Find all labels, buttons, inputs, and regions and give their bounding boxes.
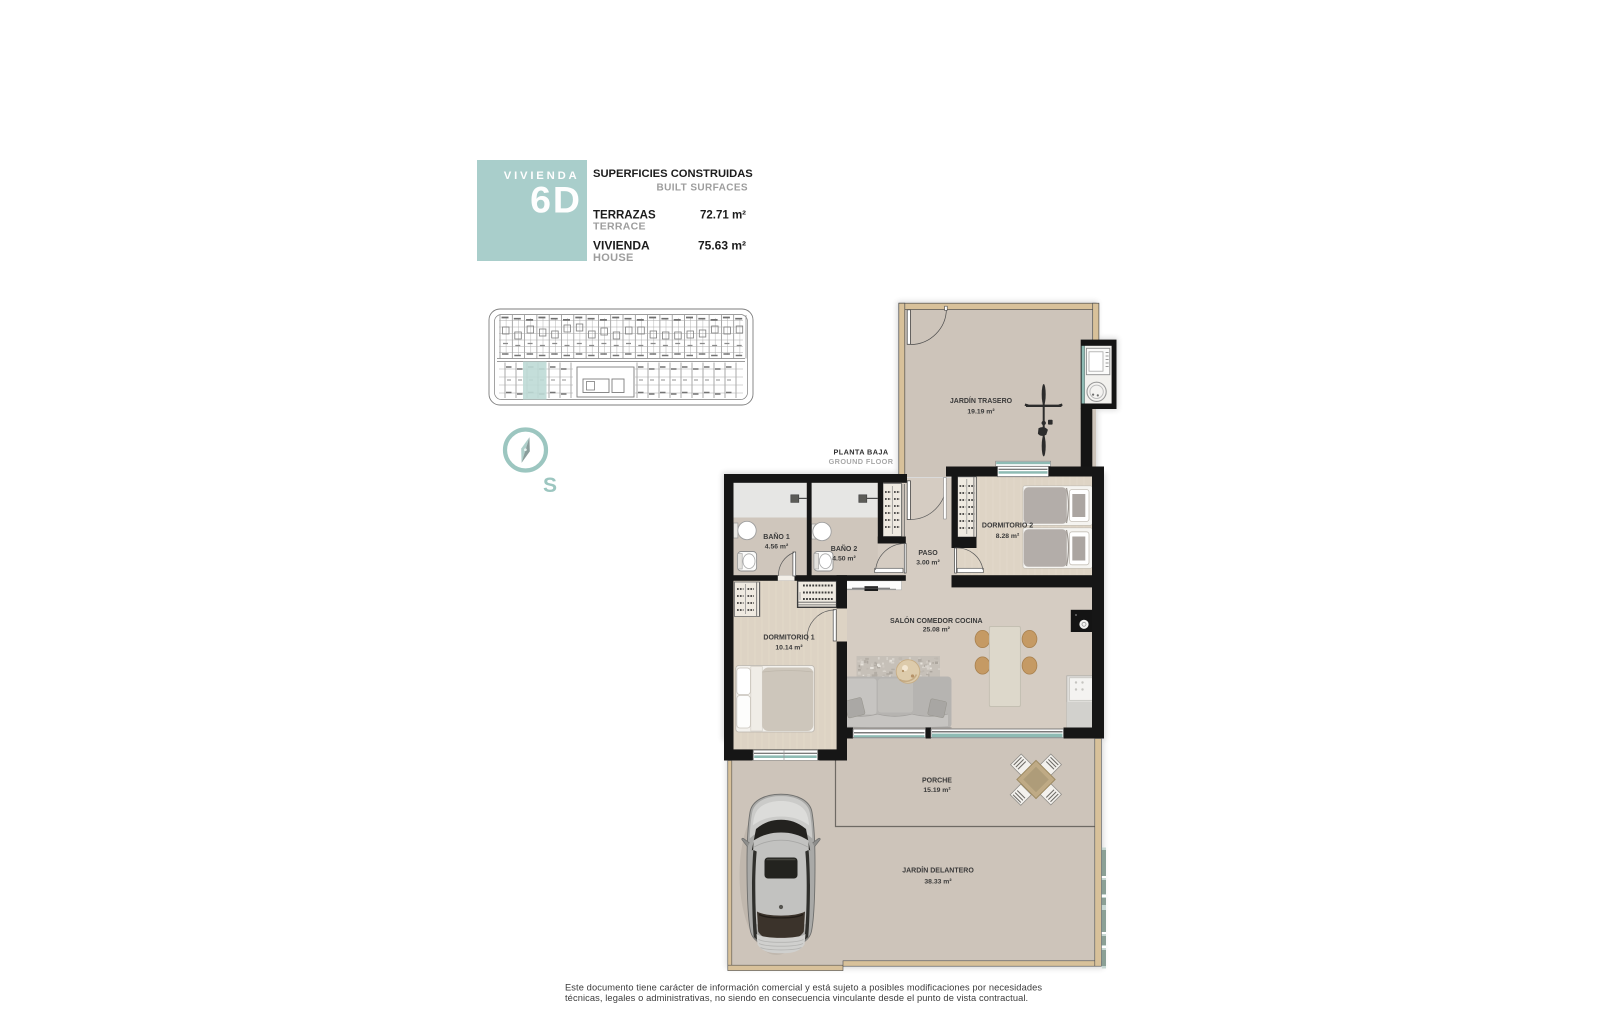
svg-text:JARDÍN TRASERO: JARDÍN TRASERO bbox=[950, 396, 1013, 405]
svg-text:JARDÍN DELANTERO: JARDÍN DELANTERO bbox=[902, 865, 974, 874]
svg-text:4.56 m²: 4.56 m² bbox=[765, 543, 789, 550]
svg-text:técnicas, legales o administra: técnicas, legales o administrativas, no … bbox=[565, 993, 1028, 1003]
svg-text:PLANTA BAJA: PLANTA BAJA bbox=[833, 448, 888, 457]
svg-text:PORCHE: PORCHE bbox=[922, 777, 952, 784]
svg-text:10.14 m²: 10.14 m² bbox=[775, 645, 803, 652]
svg-text:25.08 m²: 25.08 m² bbox=[923, 627, 951, 634]
svg-text:72.71 m²: 72.71 m² bbox=[700, 210, 746, 222]
svg-text:PASO: PASO bbox=[918, 550, 938, 557]
svg-text:38.33 m²: 38.33 m² bbox=[924, 878, 952, 885]
svg-text:BUILT SURFACES: BUILT SURFACES bbox=[656, 183, 748, 194]
svg-text:DORMITORIO 1: DORMITORIO 1 bbox=[763, 634, 814, 641]
svg-text:8.28 m²: 8.28 m² bbox=[996, 533, 1020, 540]
svg-text:4.50 m²: 4.50 m² bbox=[832, 555, 856, 562]
svg-text:6D: 6D bbox=[530, 179, 582, 221]
svg-text:GROUND FLOOR: GROUND FLOOR bbox=[829, 457, 894, 466]
svg-text:15.19 m²: 15.19 m² bbox=[923, 787, 951, 794]
svg-text:BAÑO 2: BAÑO 2 bbox=[831, 544, 858, 553]
svg-text:75.63 m²: 75.63 m² bbox=[698, 239, 746, 253]
svg-text:HOUSE: HOUSE bbox=[593, 252, 634, 264]
svg-text:19.19 m²: 19.19 m² bbox=[967, 409, 995, 416]
svg-text:VIVIENDA: VIVIENDA bbox=[593, 239, 650, 253]
svg-text:3.00 m²: 3.00 m² bbox=[916, 559, 940, 566]
svg-text:S: S bbox=[543, 474, 557, 497]
svg-text:Este documento tiene carácter: Este documento tiene carácter de informa… bbox=[565, 983, 1042, 993]
svg-text:SALÓN COMEDOR COCINA: SALÓN COMEDOR COCINA bbox=[890, 616, 983, 625]
svg-text:BAÑO 1: BAÑO 1 bbox=[763, 532, 790, 541]
svg-text:SUPERFICIES CONSTRUIDAS: SUPERFICIES CONSTRUIDAS bbox=[593, 168, 753, 180]
svg-text:TERRACE: TERRACE bbox=[593, 221, 646, 233]
svg-text:DORMITORIO 2: DORMITORIO 2 bbox=[982, 523, 1033, 530]
